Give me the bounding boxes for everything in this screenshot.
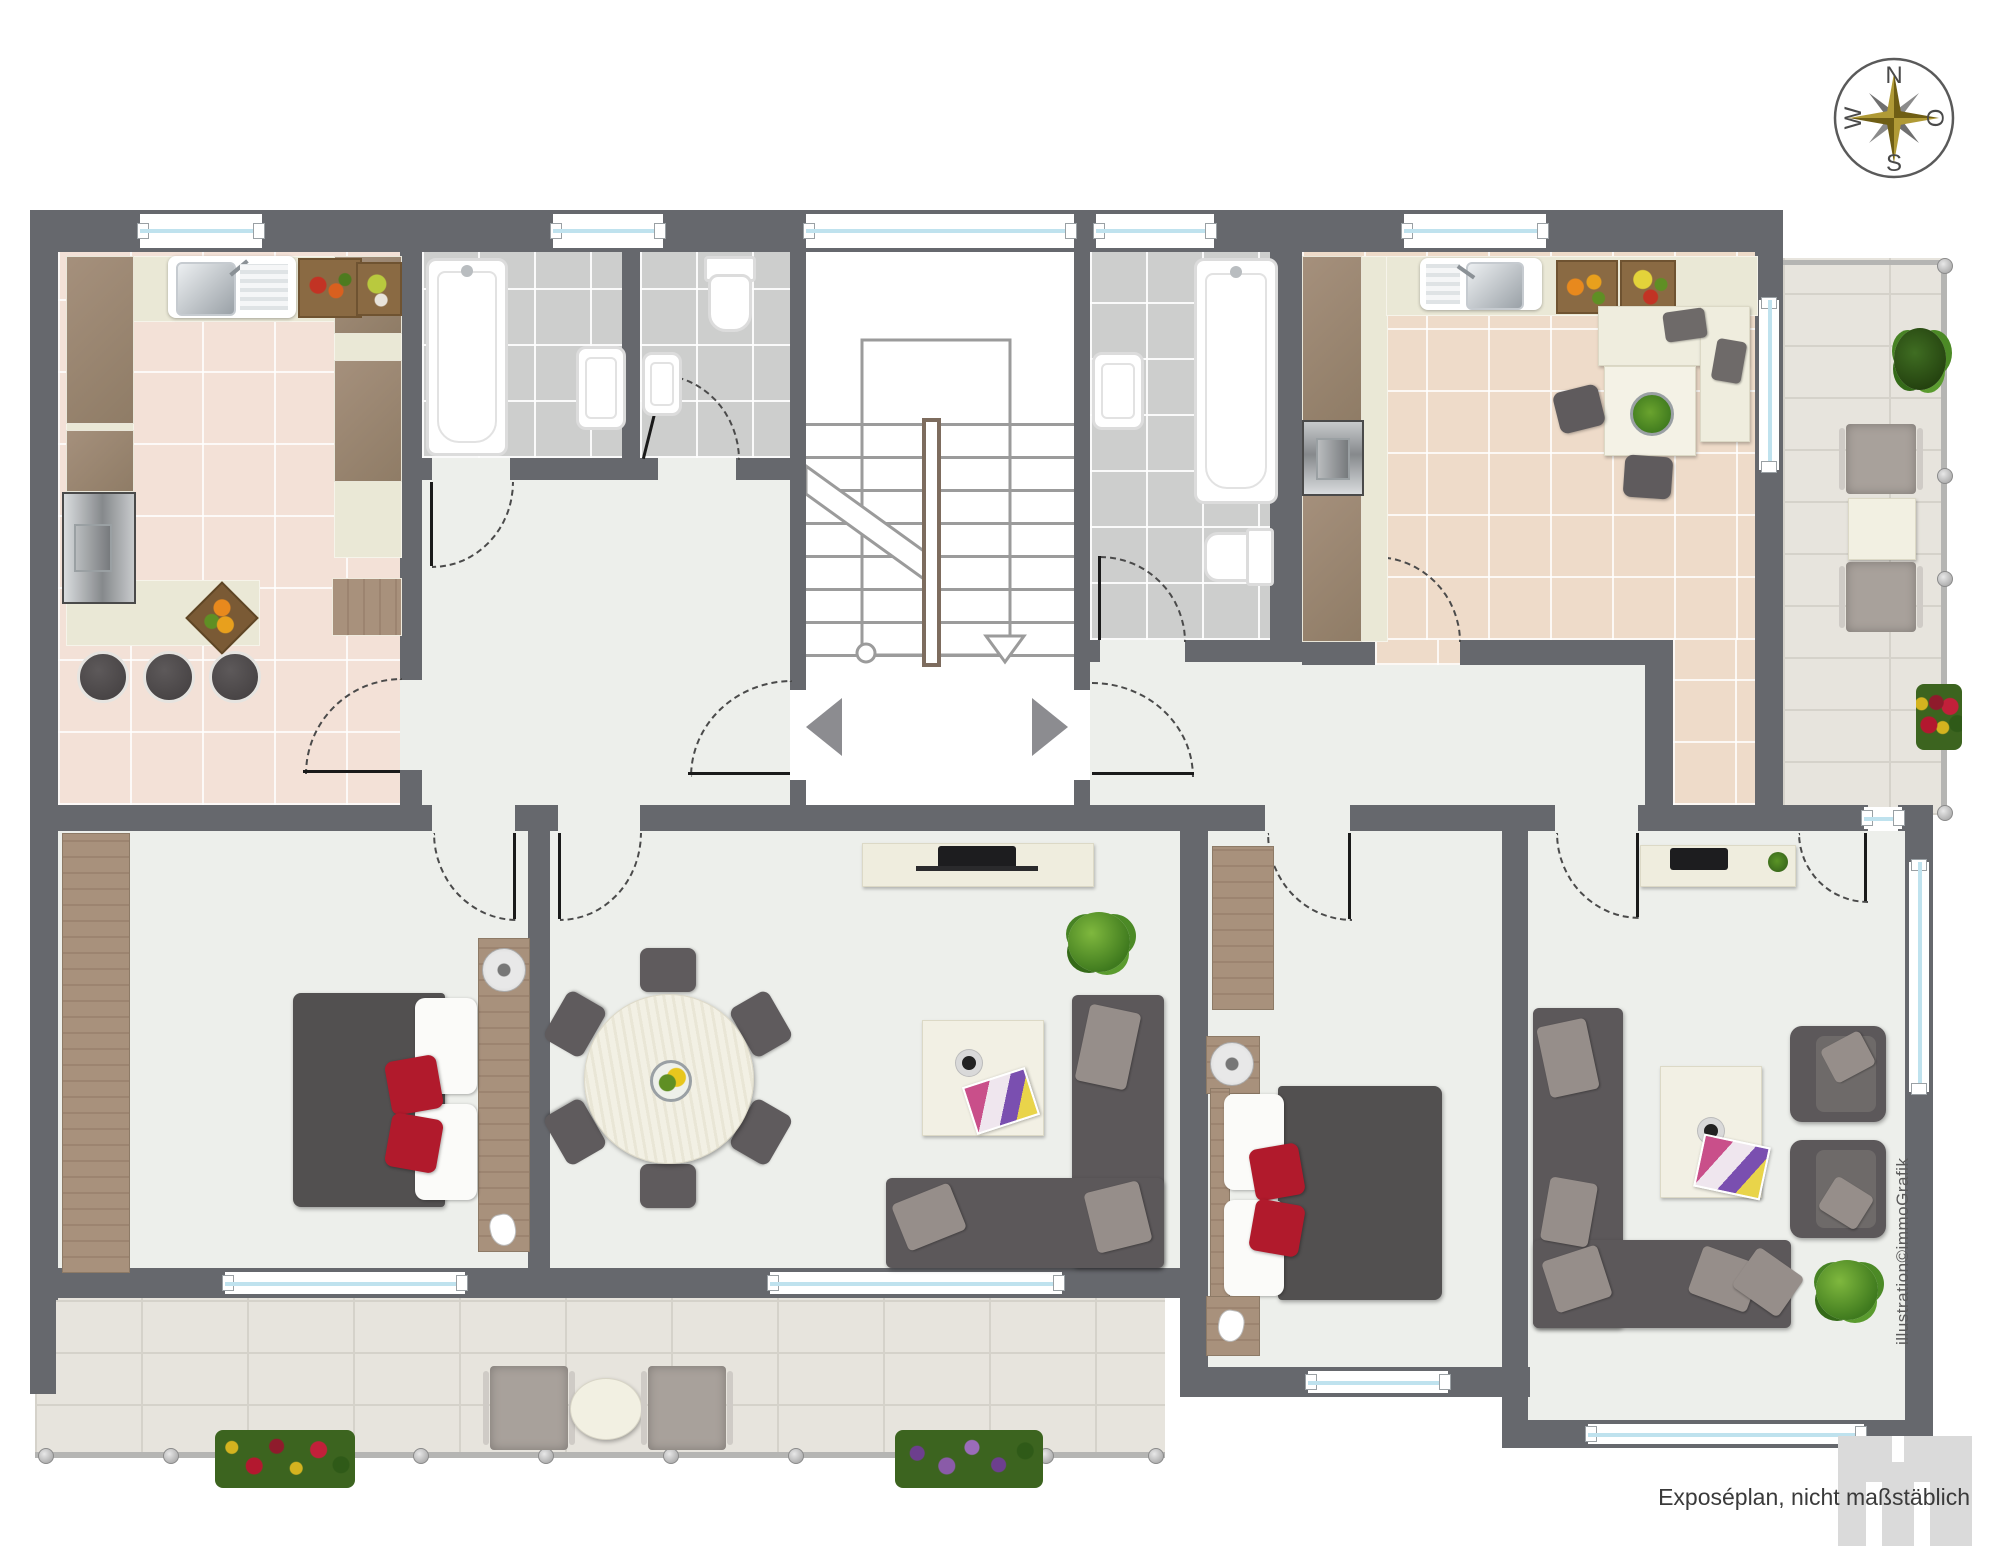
railing-post [1937,805,1953,821]
dining-chair [640,1164,696,1208]
wall-kitchen-right-left-apt [400,252,422,680]
flower-box [1916,684,1962,750]
wall-stairwell-right [1074,252,1090,690]
kitchen-nook-floor-right [1673,640,1755,805]
cutting-board-vegetables [298,258,362,318]
door-leaf [1092,772,1194,775]
balcony-table [570,1378,642,1440]
kitchen-sink [1420,258,1542,310]
plant [1816,1260,1878,1320]
wall-stairwell-left [790,780,806,805]
window-stairwell [806,214,1074,248]
tv-soundbar [916,866,1038,871]
wall-bath-bottom-right [1185,640,1270,662]
bar-stool [143,651,195,703]
wall-kitchen-right-left-apt [400,770,422,805]
bathtub-inner [1205,273,1267,489]
fruit-bowl [650,1060,692,1102]
kitchen-cabinet [1302,256,1362,422]
stove-handle [74,524,112,572]
wall-bedroom-living-divider-right [1502,831,1528,1448]
wall-bedroom-dining-divider-left [528,831,550,1268]
terrace-chair [1846,562,1916,632]
terrace-chair [1846,424,1916,494]
railing-post [1148,1448,1164,1464]
window [770,1272,1062,1294]
handrail-start [857,644,875,662]
window-glass [806,229,1074,233]
wall-mid [1638,805,1868,831]
terrace-plant [1894,328,1946,390]
kitchen-cabinet [334,360,402,482]
compass-label-east: O [1921,109,1948,128]
wall-wc-bottom [736,458,790,480]
railing-post [1937,571,1953,587]
compass-label-west: W [1840,106,1867,129]
window [140,214,262,248]
dining-chair [640,948,696,992]
door-patch [1375,640,1460,665]
terrace-railing [1783,260,1947,265]
kitchen-cabinet [66,430,134,492]
wall-nook-left [1645,640,1673,805]
wall-bath-bottom [422,458,432,480]
washbasin [576,346,626,430]
basin-inner [1101,363,1135,419]
wall-left [30,210,58,1300]
wall-bath-bottom [510,458,658,480]
bar-stool [209,651,261,703]
toilet-bowl [708,274,752,332]
door-leaf [1864,833,1867,901]
floor-plan: N O S W illustration©immoGrafik Exposépl… [0,0,1999,1563]
bathtub [426,258,508,456]
kitchen-counter [1360,256,1388,642]
window-glass [1308,1381,1448,1385]
bench-cushion [1662,307,1708,343]
window-glass [1768,300,1772,470]
door-leaf [1098,556,1101,640]
terrace-door-living [1864,807,1902,829]
bathtub-faucet-icon [461,265,473,277]
bed-accent-pillow [1248,1142,1306,1202]
bedside-lamp [482,948,526,992]
kitchen-cabinet [1302,492,1362,642]
bowl-fruit-small [356,262,402,316]
door-leaf [303,770,400,773]
door-patch [432,458,510,480]
window-glass [1864,817,1902,821]
wardrobe [62,833,130,1273]
window-glass [1096,229,1214,233]
kitchen-sink [168,256,296,318]
tv-flatscreen [1670,848,1728,870]
bed-right [1278,1086,1442,1300]
sink-bowl [176,262,236,316]
railing-post [538,1448,554,1464]
door-patch [400,680,422,770]
plan-disclaimer: Exposéplan, nicht maßstäblich [1540,1484,1970,1511]
armchair [1790,1140,1886,1238]
sink-drainboard [240,264,288,310]
bathtub-inner [437,271,497,443]
railing-post [788,1448,804,1464]
bed-accent-pillow [1248,1198,1306,1258]
door-leaf [430,482,433,566]
wall-mid [515,805,558,831]
railing-post [413,1448,429,1464]
window-glass [770,1282,1062,1286]
window-glass [553,229,663,233]
stove [62,492,136,604]
wall-mid [1350,805,1555,831]
window [1909,862,1929,1092]
dining-chair [1623,454,1674,499]
balcony-chair [648,1366,726,1450]
kitchen-cabinet [66,256,134,424]
watermark-credit: illustration©immoGrafik [1893,1158,1913,1345]
bar-stool [77,651,129,703]
wall-stairwell-left [790,252,806,690]
compass-label-south: S [1886,150,1902,177]
washbasin [1092,352,1144,430]
wall-bath-bottom-right [1090,640,1100,662]
window [1588,1424,1864,1444]
wall-kitchen-bottom-right [1460,640,1645,665]
basin-inner [585,357,617,419]
wall-mid [30,805,432,831]
logo-slot [1892,1436,1904,1462]
compass-label-north: N [1885,62,1902,89]
window-glass [1918,862,1922,1092]
coffee-cup [956,1050,982,1076]
door-leaf [1636,833,1639,917]
railing-post [163,1448,179,1464]
sink-bowl [1466,262,1524,310]
balcony-chair [490,1366,568,1450]
bathtub [1194,258,1278,504]
window [1308,1371,1448,1393]
door-patch [658,458,736,480]
window-glass [1404,229,1546,233]
railing-post [38,1448,54,1464]
stove-handle [1316,438,1350,480]
bedside-lamp [1210,1042,1254,1086]
stove [1302,420,1364,496]
armchair [1790,1026,1886,1122]
plant [1068,912,1130,972]
door-patch [558,805,640,831]
compass-rose: N O S W [1831,55,1957,181]
wall-kitchen-bottom-right [1302,640,1375,665]
door-patch [1100,640,1185,662]
window [553,214,663,248]
toilet-tank [1246,528,1274,586]
wall-stairwell-right [1074,780,1090,805]
bathtub-faucet-icon [1230,266,1242,278]
terrace-door-kitchen [1759,300,1779,470]
window [1404,214,1546,248]
window-glass [140,229,262,233]
kitchen-tall-cabinet [332,578,402,636]
sideboard-plant [1768,852,1788,872]
wall-living-left-bedroom-right [1180,831,1208,1397]
terrace-table [1848,498,1916,560]
door-patch [1555,805,1638,831]
flower-box [895,1430,1043,1488]
wall-left-stub [30,1298,56,1394]
bed-accent-pillow [384,1054,445,1116]
sink-drainboard [1426,264,1460,304]
railing-post [663,1448,679,1464]
wardrobe [1212,846,1274,1010]
window [225,1272,465,1294]
window-glass [1588,1433,1864,1437]
wall-mid [640,805,1265,831]
flower-box [215,1430,355,1488]
bed-accent-pillow [384,1112,445,1174]
washbasin-small [642,352,682,416]
door-leaf [688,772,790,775]
window-glass [225,1282,465,1286]
railing-post [1937,258,1953,274]
table-plant [1630,392,1674,436]
stairs-down-arrow-icon [986,636,1024,662]
railing-post [1937,468,1953,484]
door-leaf [1348,833,1351,919]
stairs-break-line [806,466,928,582]
door-leaf [558,833,561,919]
door-leaf [513,833,516,919]
door-patch [1265,805,1350,831]
stairs-divider [924,420,939,665]
door-patch [432,805,515,831]
window [1096,214,1214,248]
basin-inner [650,362,674,406]
